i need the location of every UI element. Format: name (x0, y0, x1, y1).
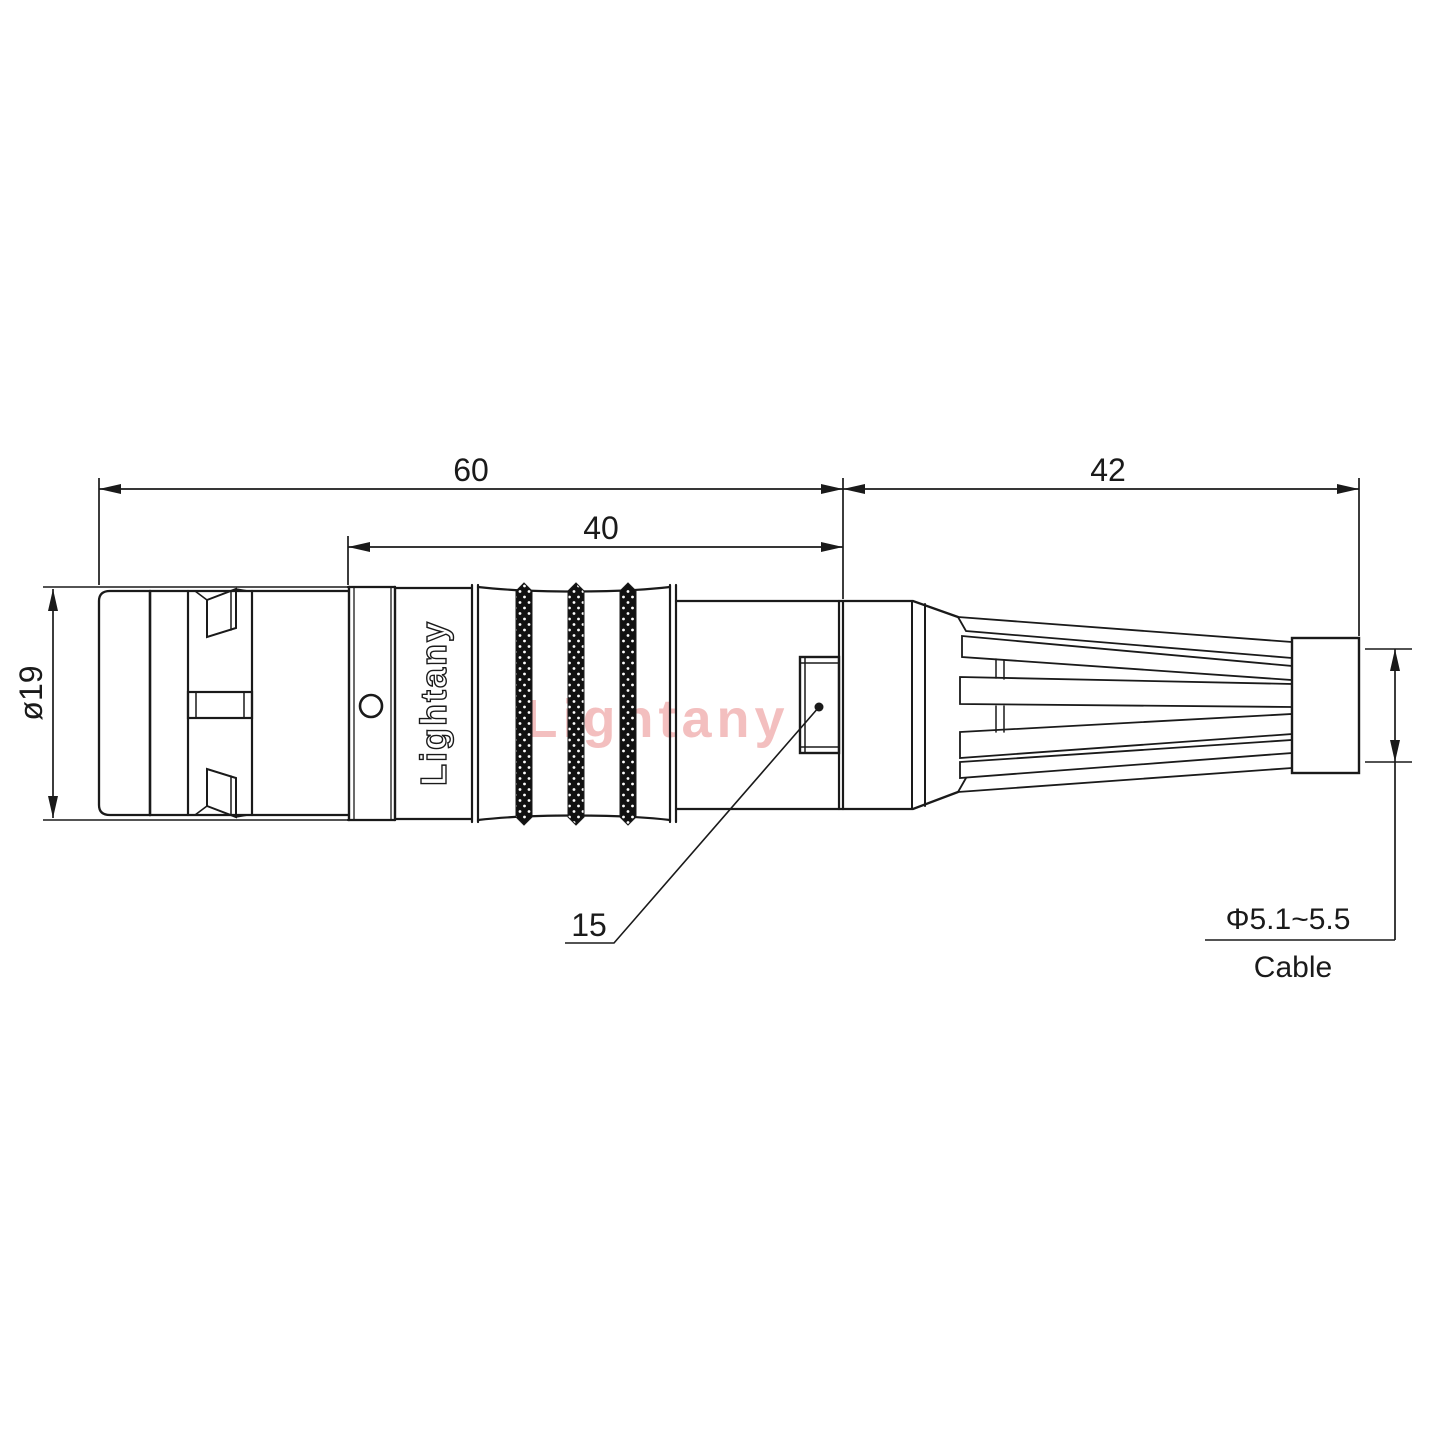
technical-drawing-page: Lightany (0, 0, 1440, 1440)
dim-label-15: 15 (571, 907, 607, 943)
dim-label-cable-diameter: Φ5.1~5.5 (1226, 903, 1351, 936)
knurl-band (620, 583, 636, 825)
dim-label-dia19: ø19 (13, 665, 49, 720)
dim-label-60: 60 (453, 452, 489, 488)
cable-caption: Cable (1254, 951, 1332, 984)
body-logo-text: Lightany (413, 620, 454, 786)
watermark-text: Lightany (525, 689, 790, 749)
technical-drawing-canvas: Lightany (0, 0, 1440, 1440)
dim-label-40: 40 (583, 510, 619, 546)
knurl-band (568, 583, 584, 825)
knurl-band (516, 583, 532, 825)
dim-label-42: 42 (1090, 452, 1126, 488)
